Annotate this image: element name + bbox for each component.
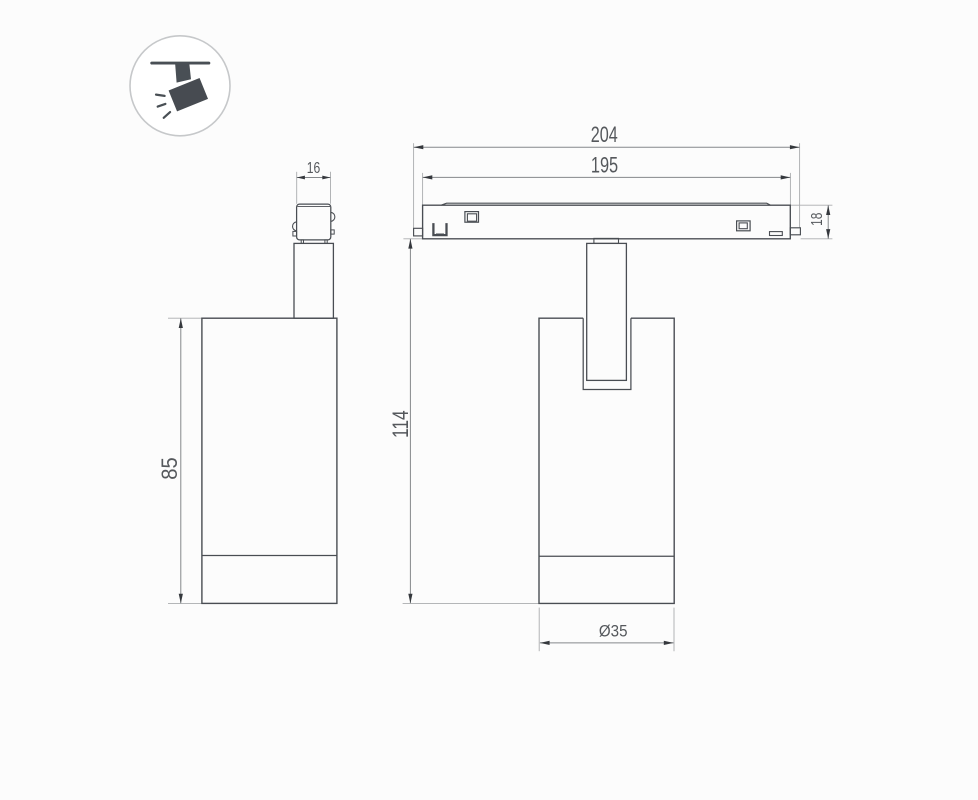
svg-text:Ø35: Ø35 [599,623,628,641]
svg-text:16: 16 [307,160,321,177]
svg-text:204: 204 [591,122,618,147]
svg-text:195: 195 [591,152,618,177]
svg-text:114: 114 [388,410,413,438]
svg-text:85: 85 [157,457,182,480]
svg-text:18: 18 [809,213,826,226]
